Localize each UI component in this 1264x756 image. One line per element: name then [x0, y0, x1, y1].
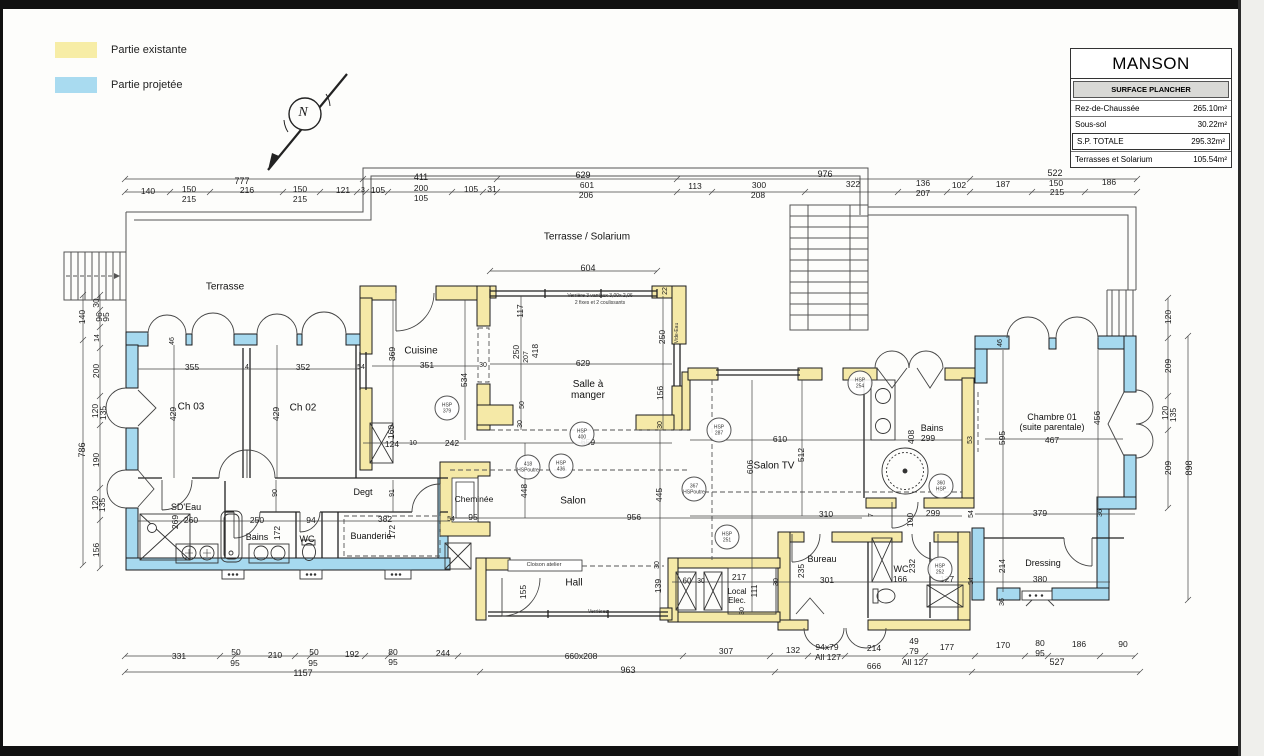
staircase-top-right	[790, 205, 868, 330]
row-label: Sous-sol	[1075, 120, 1106, 129]
surface-header: SURFACE PLANCHER	[1073, 81, 1229, 98]
existing-color-swatch	[55, 42, 97, 58]
legend-label: Partie projetée	[111, 79, 183, 91]
row-value: 30.22m²	[1198, 120, 1227, 129]
floor-plan-page: NTerrasseTerrasse / SolariumCh 03Ch 02Cu…	[0, 0, 1264, 756]
fireplace	[452, 478, 478, 522]
row-value: 265.10m²	[1193, 104, 1227, 113]
row-value: 105.54m²	[1193, 155, 1227, 164]
row-label: S.P. TOTALE	[1077, 137, 1124, 146]
row-label: Rez-de-Chaussée	[1075, 104, 1139, 113]
table-row: Sous-sol 30.22m²	[1071, 116, 1231, 132]
projected-color-swatch	[55, 77, 97, 93]
table-row-total: S.P. TOTALE 295.32m²	[1072, 133, 1230, 150]
row-value: 295.32m²	[1191, 137, 1225, 146]
table-row: Terrasses et Solarium 105.54m²	[1071, 151, 1231, 167]
legend-item-existing: Partie existante	[55, 42, 187, 58]
project-title: MANSON	[1071, 49, 1231, 79]
title-block: MANSON SURFACE PLANCHER Rez-de-Chaussée …	[1070, 48, 1232, 168]
table-row: Rez-de-Chaussée 265.10m²	[1071, 100, 1231, 116]
walls-existing	[360, 286, 975, 630]
legend: Partie existante Partie projetée	[55, 42, 187, 112]
north-arrow	[268, 74, 347, 170]
legend-item-projected: Partie projetée	[55, 77, 187, 93]
legend-label: Partie existante	[111, 44, 187, 56]
row-label: Terrasses et Solarium	[1075, 155, 1152, 164]
cloison-atelier	[508, 560, 582, 571]
staircase-left	[64, 252, 126, 300]
